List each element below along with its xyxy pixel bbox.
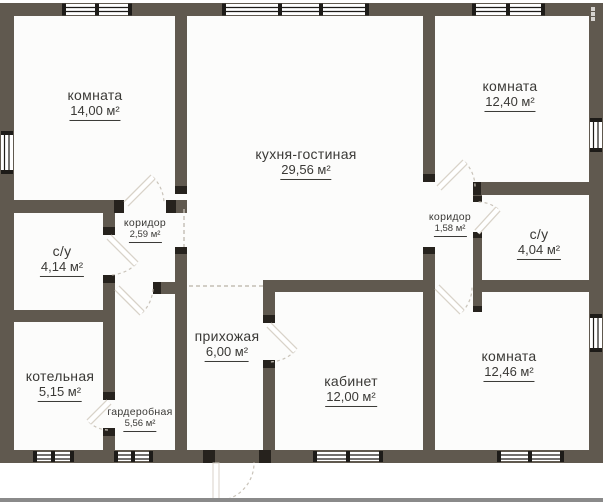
window-pane (590, 120, 602, 150)
window-pane (590, 316, 602, 350)
floor-plan-drawing (0, 0, 603, 502)
wall-jamb (473, 182, 481, 195)
window-post (590, 148, 602, 152)
dot (591, 12, 595, 16)
window-post (1, 131, 13, 135)
window (590, 314, 602, 352)
dot (591, 17, 595, 21)
wall-jamb (259, 450, 271, 463)
wall-segment (423, 16, 435, 182)
floor (0, 3, 603, 463)
wall-segment (473, 280, 603, 292)
entrance-door-leaf (213, 463, 219, 501)
window-post (379, 451, 383, 462)
window-post (472, 4, 476, 16)
window-post (590, 314, 602, 318)
wall-jamb (166, 200, 176, 213)
window-post (365, 4, 369, 16)
window-post (497, 451, 501, 462)
wall-jamb (473, 306, 482, 312)
wall-jamb (103, 275, 115, 283)
window-post (114, 451, 118, 462)
wall-jamb (473, 196, 482, 202)
wall-segment (589, 3, 603, 463)
wall-segment (423, 247, 435, 450)
wall-jamb (263, 315, 275, 323)
more-options-icon[interactable] (591, 7, 597, 22)
window (62, 4, 132, 16)
wall-jamb (175, 247, 187, 254)
window (1, 131, 13, 174)
window-post (131, 451, 135, 462)
door-swing (216, 462, 254, 501)
dot (591, 7, 595, 11)
window-post (506, 4, 510, 16)
window-post (149, 451, 153, 462)
wall-segment (0, 3, 14, 463)
window-post (541, 4, 545, 16)
window-post (51, 451, 55, 462)
window-post (62, 4, 66, 16)
wall-jamb (423, 174, 435, 182)
window-post (346, 451, 350, 462)
wall-segment (263, 280, 435, 292)
window-pane (1, 133, 13, 172)
window (222, 4, 369, 16)
wall-jamb (103, 227, 115, 235)
bottom-edge-bar (0, 498, 603, 502)
wall-jamb (423, 247, 435, 254)
wall-segment (175, 16, 187, 186)
floor-plan: комната 14,00 м² кухня-гостиная 29,56 м²… (0, 0, 603, 502)
window-post (33, 451, 37, 462)
wall-segment (14, 310, 103, 322)
window-post (1, 170, 13, 174)
window (33, 451, 74, 462)
wall-segment (175, 247, 187, 450)
window (497, 451, 564, 462)
wall-jamb (153, 282, 161, 294)
window-post (222, 4, 226, 16)
window (114, 451, 153, 462)
window-post (95, 4, 99, 16)
wall-jamb (203, 450, 215, 463)
window-post (278, 4, 282, 16)
window-post (590, 118, 602, 122)
window (472, 4, 545, 16)
window-post (313, 451, 317, 462)
window-post (590, 348, 602, 352)
wall-jamb (103, 392, 115, 400)
window (590, 118, 602, 152)
wall-jamb (114, 200, 124, 213)
window-pane (224, 4, 367, 15)
window-post (128, 4, 132, 16)
wall-segment (263, 360, 275, 450)
wall-jamb (103, 428, 115, 436)
window-post (528, 451, 532, 462)
window-post (70, 451, 74, 462)
window-post (560, 451, 564, 462)
wall-segment (473, 182, 603, 195)
wall-segment (103, 275, 115, 400)
window (313, 451, 383, 462)
wall-jamb (175, 186, 187, 194)
wall-segment (473, 232, 482, 280)
window-post (319, 4, 323, 16)
